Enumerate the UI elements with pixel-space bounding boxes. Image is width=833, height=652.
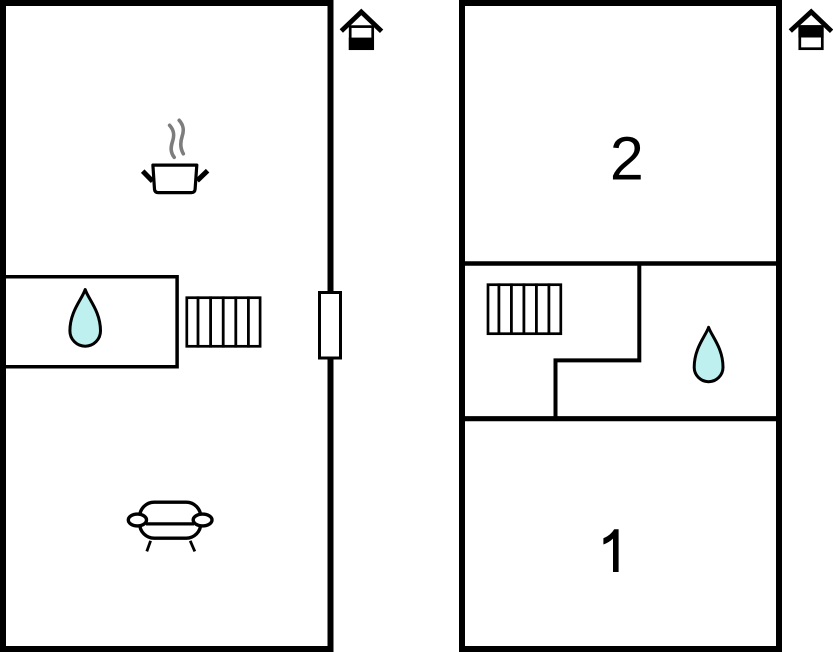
svg-text:2: 2 <box>610 125 644 193</box>
